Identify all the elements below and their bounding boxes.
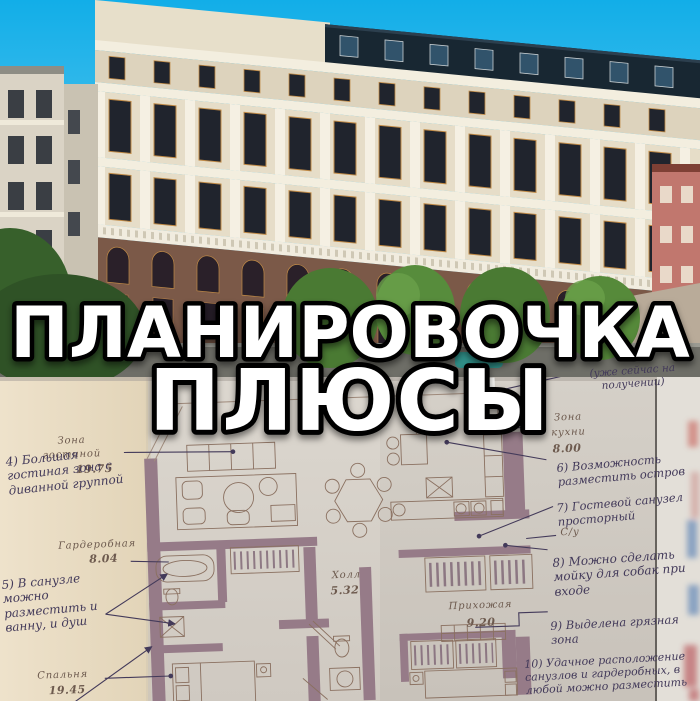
svg-text:Зона: Зона [554, 411, 582, 423]
svg-text:Спальня: Спальня [37, 669, 88, 682]
svg-text:5.32: 5.32 [330, 583, 359, 597]
svg-text:8.04: 8.04 [89, 552, 118, 566]
svg-text:Прихожая: Прихожая [448, 599, 513, 612]
building-photo [0, 0, 700, 377]
handwritten-note-5: 5) В санузле можно разместить и ванну, и… [1, 567, 132, 635]
svg-text:19.45: 19.45 [48, 683, 85, 697]
svg-text:Зона: Зона [57, 435, 85, 447]
svg-text:8.00: 8.00 [552, 442, 581, 456]
svg-text:кухни: кухни [551, 426, 586, 438]
glare [482, 378, 496, 398]
svg-text:Холл: Холл [331, 569, 361, 581]
room-label-kitchen: Зона кухни 8.00 [551, 411, 587, 455]
room-label-hall: Холл 5.32 [330, 569, 362, 597]
post: Зона гостиной 19.75 Гардеробная 8.04 Спа… [0, 0, 700, 701]
floor-plan: Зона гостиной 19.75 Гардеробная 8.04 Спа… [0, 377, 700, 701]
